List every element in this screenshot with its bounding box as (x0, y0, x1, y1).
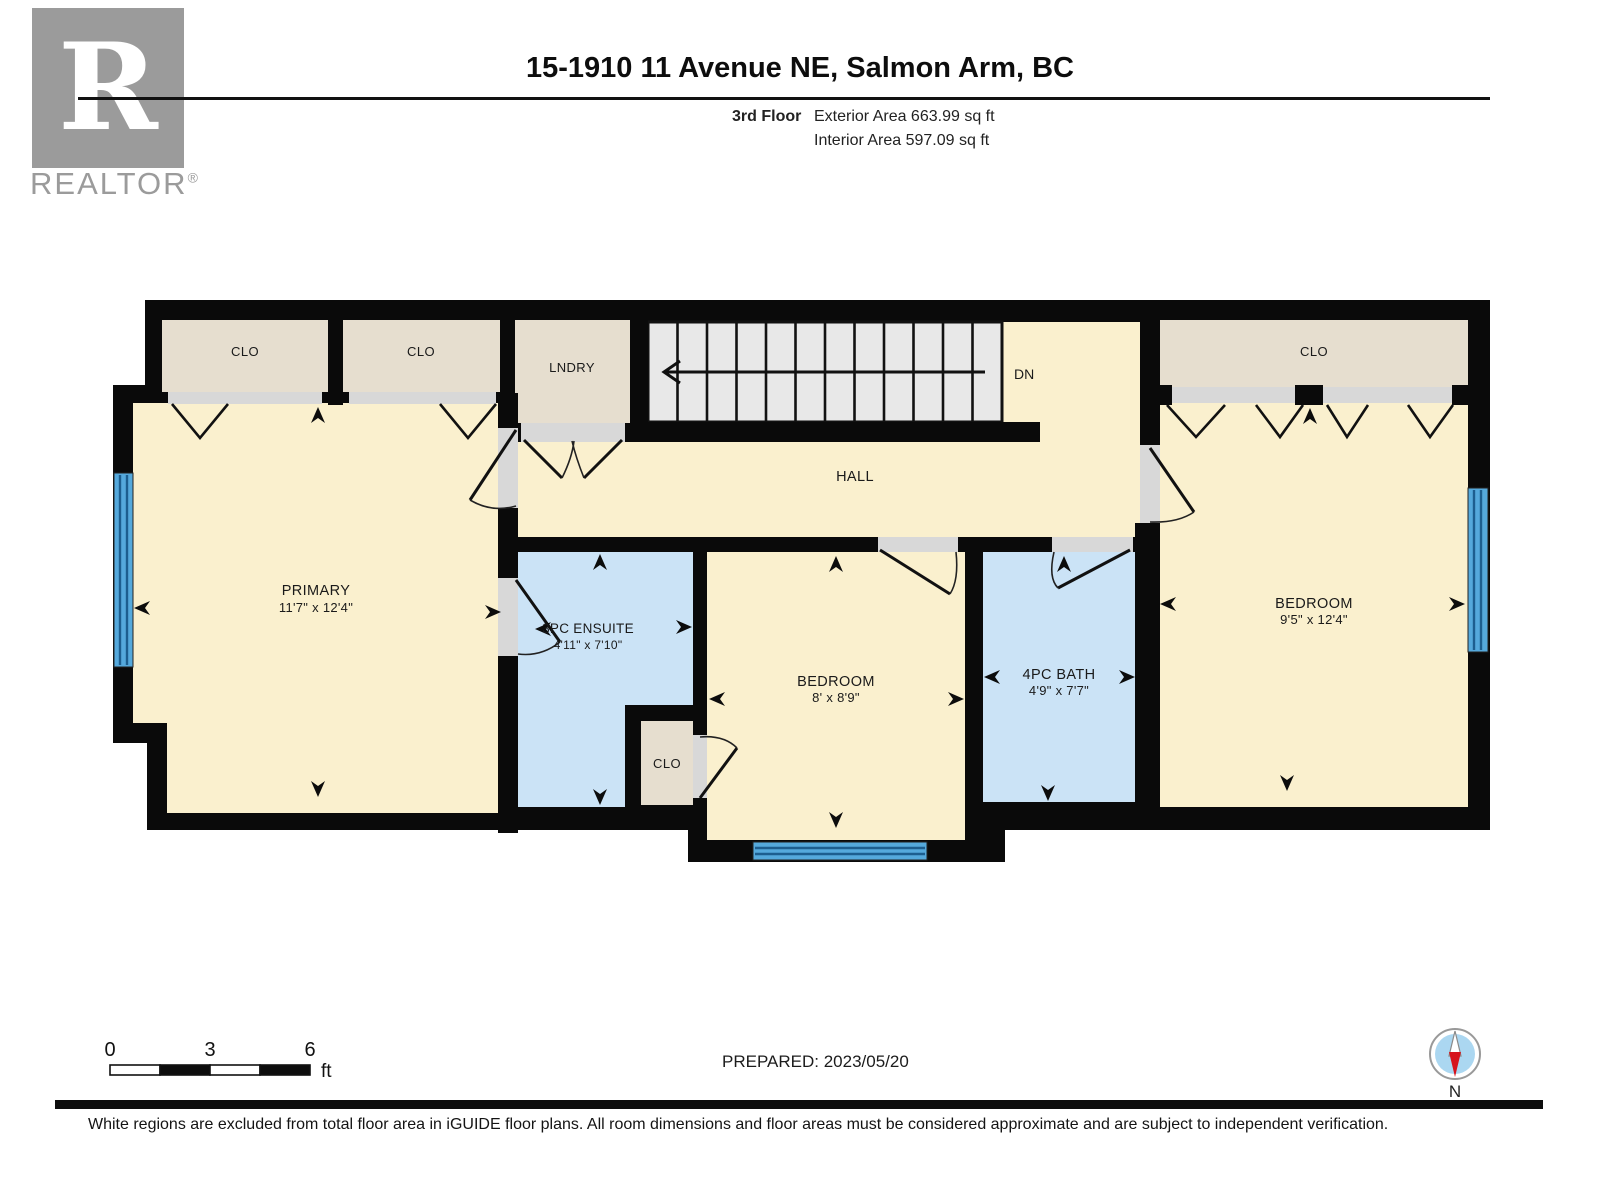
compass-icon: N (1422, 1016, 1488, 1102)
doorway-closet3 (693, 735, 707, 798)
wall-hall-bedroom-right (1140, 300, 1160, 445)
doorway-ensuite (498, 578, 518, 656)
label-ensuite: 3PC ENSUITE (542, 621, 634, 636)
scale-tick-0: 0 (104, 1039, 115, 1061)
scale-tick-6: 6 (304, 1039, 315, 1061)
label-closet4: CLO (1300, 344, 1328, 359)
wall-ensuite-closet3-v (625, 705, 641, 807)
wall-bath-bedroom-right (1135, 523, 1160, 830)
floor-plan-page: R REALTOR® 15-1910 11 Avenue NE, Salmon … (0, 0, 1600, 1200)
wall-below-stairs (630, 422, 1040, 442)
closet1-track (168, 392, 322, 404)
label-bedroom-right: BEDROOM (1275, 596, 1353, 612)
label-primary: PRIMARY (282, 583, 351, 599)
wall-closet2-laundry (500, 315, 515, 395)
scale-seg-1 (110, 1065, 160, 1075)
doorway-bedroom-mid (878, 537, 958, 552)
scale-seg-3 (210, 1065, 260, 1075)
closet4-track-post (1295, 385, 1323, 405)
scale-bar: 0 3 6 ft (95, 1028, 355, 1086)
label-closet1: CLO (231, 344, 259, 359)
label-closet3: CLO (653, 756, 681, 771)
doorway-laundry (521, 423, 625, 442)
footer-divider (55, 1100, 1543, 1109)
window-primary-left (114, 473, 133, 667)
wall-laundry-stairs (630, 300, 648, 442)
label-hall: HALL (836, 469, 874, 485)
floor-plan-drawing: CLO CLO LNDRY DN HALL PRIMARY 11'7" x 12… (0, 0, 1600, 1200)
closet4-track-stub-right (1452, 385, 1468, 405)
scale-tick-3: 3 (204, 1039, 215, 1061)
disclaimer-text: White regions are excluded from total fl… (88, 1116, 1388, 1134)
scale-seg-2 (160, 1065, 210, 1075)
hall-floor (518, 442, 1140, 537)
wall-hall-south-2 (958, 537, 1052, 552)
room-ensuite-floor-lower (518, 552, 625, 807)
dims-bedroom-right: 9'5" x 12'4" (1280, 612, 1348, 627)
label-laundry: LNDRY (549, 360, 595, 375)
dims-ensuite: 4'11" x 7'10" (554, 638, 623, 652)
wall-hall-south-1 (518, 537, 878, 552)
label-closet2: CLO (407, 344, 435, 359)
label-bedroom-mid: BEDROOM (797, 674, 875, 690)
label-stairs-dn: DN (1014, 366, 1034, 382)
dims-primary: 11'7" x 12'4" (279, 600, 353, 615)
prepared-date: PREPARED: 2023/05/20 (722, 1052, 909, 1072)
wall-bedroom-bath (965, 552, 983, 862)
dims-bath: 4'9" x 7'7" (1029, 683, 1089, 698)
doorway-bath (1052, 537, 1133, 552)
window-bedroom-right (1468, 488, 1488, 652)
closet2-track (349, 392, 496, 404)
wall-closet1-closet2 (328, 315, 343, 405)
scale-seg-4 (260, 1065, 310, 1075)
label-bath: 4PC BATH (1022, 667, 1095, 683)
scale-unit: ft (321, 1061, 332, 1082)
window-bedroom-mid (753, 842, 927, 860)
closet4-track-stub-left (1156, 385, 1172, 405)
dims-bedroom-mid: 8' x 8'9" (812, 690, 860, 705)
compass-n-label: N (1449, 1082, 1461, 1101)
